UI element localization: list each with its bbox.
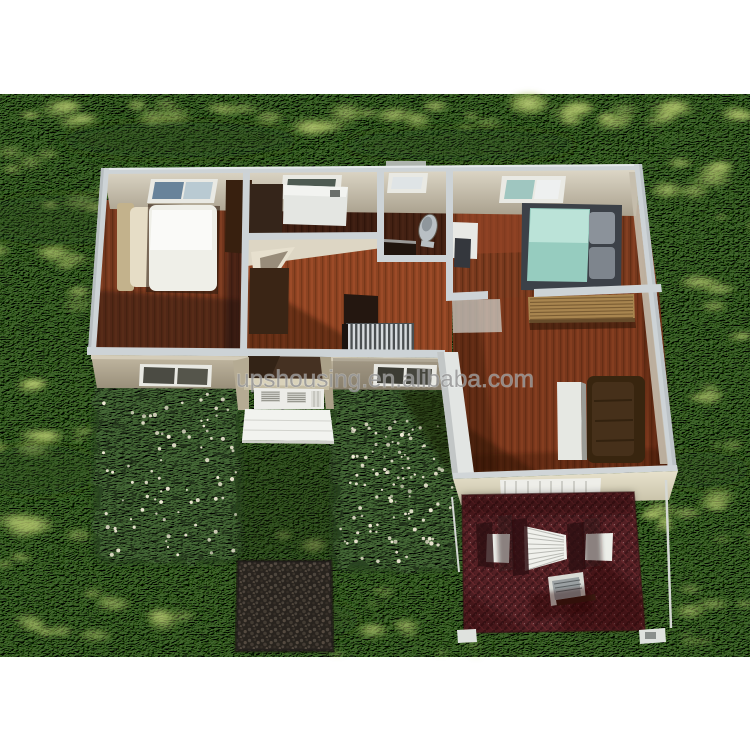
svg-text:upshousing.en.alibaba.com: upshousing.en.alibaba.com — [236, 366, 534, 393]
